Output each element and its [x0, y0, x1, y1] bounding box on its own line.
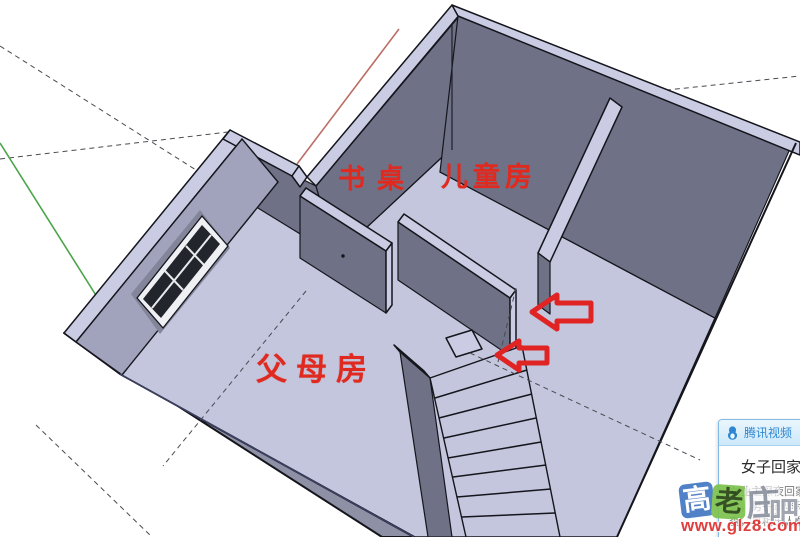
- wall-end-cap: [386, 243, 392, 313]
- guide-line: [36, 425, 152, 537]
- penguin-icon: [726, 426, 739, 440]
- label-desk: 书桌: [338, 166, 416, 193]
- popup-body-line: 查，真相出人意: [729, 515, 800, 530]
- popup-body-line: 觉，男子却坚称: [729, 500, 800, 515]
- popup-app-name: 腾讯视频: [744, 424, 792, 441]
- floorplan-3d-model: [0, 0, 800, 537]
- guide-line: [648, 76, 800, 92]
- popup-body[interactable]: 女业主深夜回家 觉，男子却坚称 查，真相出人意: [729, 485, 800, 530]
- guide-line: [0, 46, 196, 170]
- wall-point-mark: [341, 254, 344, 257]
- popup-body-line: 女业主深夜回家: [729, 485, 800, 500]
- green-axis-line: [0, 143, 104, 308]
- label-parents-room: 父母房: [256, 354, 376, 385]
- sketchup-viewport: 书桌 儿童房 父母房 腾讯视频 女子回家 女业主深夜回家 觉，男子却坚称 查，真…: [0, 0, 800, 537]
- tencent-video-popup[interactable]: 腾讯视频 女子回家 女业主深夜回家 觉，男子却坚称 查，真相出人意: [718, 419, 800, 537]
- popup-header[interactable]: 腾讯视频: [719, 420, 800, 446]
- building-model: [64, 5, 800, 537]
- popup-title[interactable]: 女子回家: [741, 456, 800, 477]
- label-kids-room: 儿童房: [441, 164, 537, 191]
- guide-line: [0, 132, 228, 159]
